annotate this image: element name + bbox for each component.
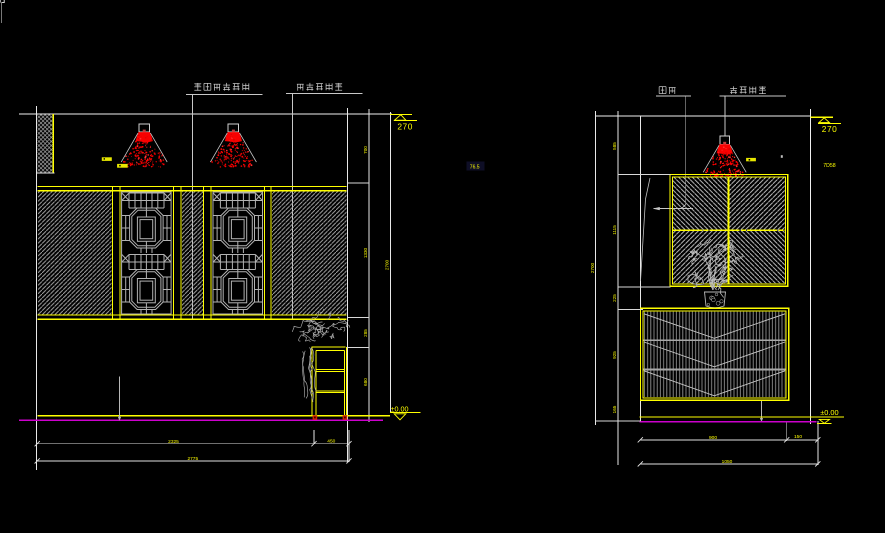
svg-text:165: 165 xyxy=(612,405,617,413)
svg-text:2775: 2775 xyxy=(187,456,198,462)
svg-text:925: 925 xyxy=(612,351,617,359)
svg-text:1330: 1330 xyxy=(363,247,368,258)
svg-text:1050: 1050 xyxy=(722,459,733,465)
svg-text:680: 680 xyxy=(363,378,368,386)
svg-text:2700: 2700 xyxy=(385,259,390,270)
svg-text:2700: 2700 xyxy=(590,262,595,273)
svg-text:1115: 1115 xyxy=(612,225,617,235)
svg-text:585: 585 xyxy=(612,142,617,150)
svg-text:76.5: 76.5 xyxy=(470,165,480,171)
svg-text:285: 285 xyxy=(363,329,368,337)
svg-text:150: 150 xyxy=(794,434,802,440)
svg-text:225: 225 xyxy=(612,294,617,302)
svg-text:270: 270 xyxy=(822,124,837,134)
svg-text:700: 700 xyxy=(363,146,368,154)
svg-text:900: 900 xyxy=(709,435,717,441)
svg-text:7D58: 7D58 xyxy=(823,163,836,169)
svg-text:270: 270 xyxy=(397,121,412,131)
svg-text:2325: 2325 xyxy=(168,439,179,445)
svg-text:450: 450 xyxy=(327,438,335,444)
svg-text:±0.00: ±0.00 xyxy=(820,408,838,417)
